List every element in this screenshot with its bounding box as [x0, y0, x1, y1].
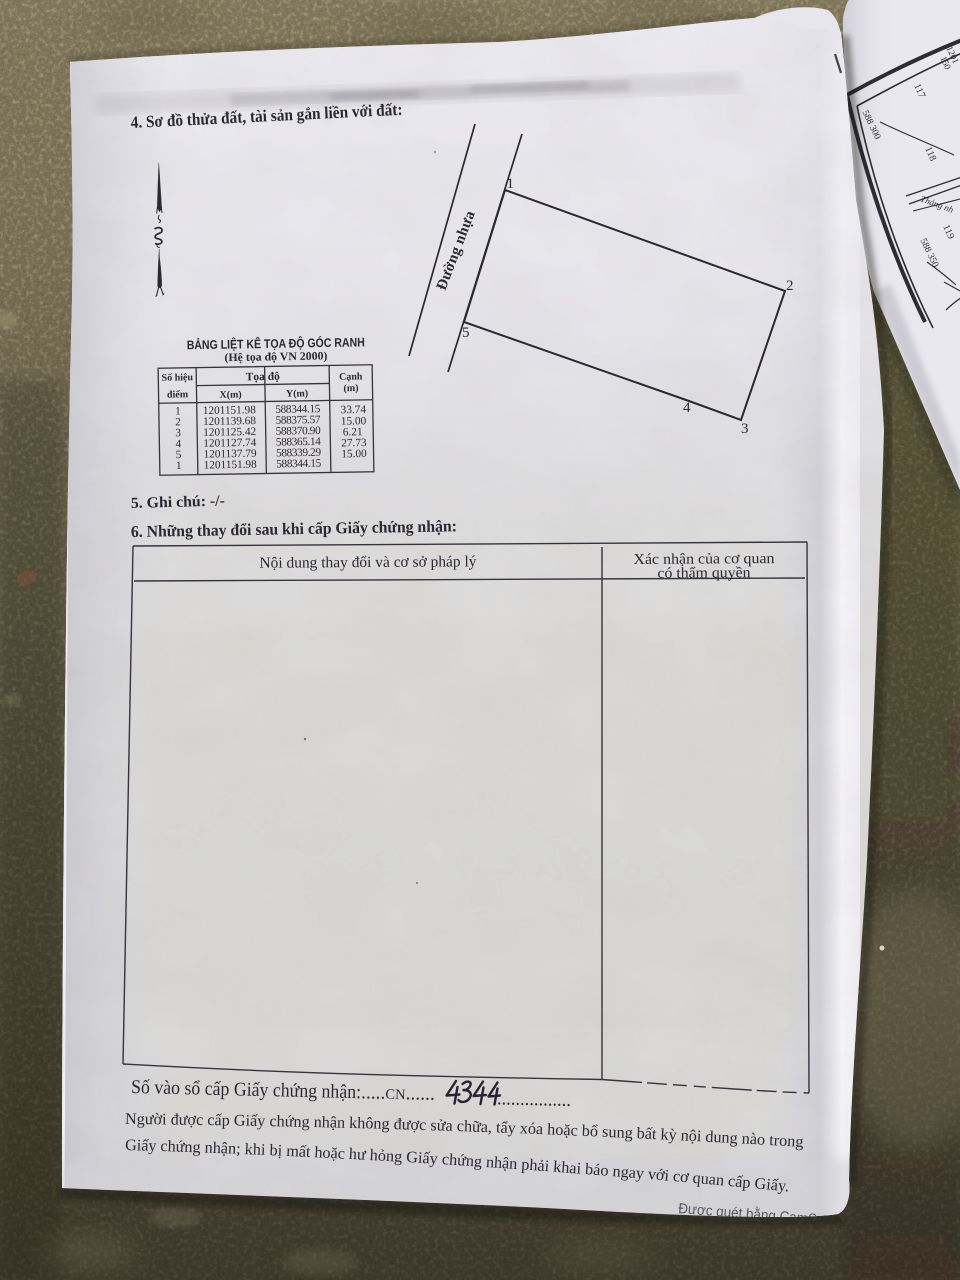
- svg-text:Tọa độ: Tọa độ: [246, 371, 281, 384]
- svg-text:5: 5: [462, 325, 470, 341]
- svg-text:588344.15: 588344.15: [276, 458, 322, 471]
- svg-text:Nội dung thay đổi và cơ sở phá: Nội dung thay đổi và cơ sở pháp lý: [259, 553, 476, 572]
- svg-text:có thẩm quyền: có thẩm quyền: [657, 565, 751, 582]
- svg-text:BẢNG LIỆT KÊ TỌA ĐỘ GÓC RANH: BẢNG LIỆT KÊ TỌA ĐỘ GÓC RANH: [187, 334, 365, 352]
- svg-text:X(m): X(m): [219, 389, 241, 400]
- svg-text:(Hệ tọa độ VN 2000): (Hệ tọa độ VN 2000): [224, 350, 327, 364]
- svg-text:4: 4: [683, 400, 691, 416]
- svg-text:1201151.98: 1201151.98: [204, 459, 258, 472]
- svg-text:1: 1: [507, 176, 515, 192]
- svg-text:2: 2: [786, 278, 794, 294]
- svg-text:3: 3: [741, 421, 749, 437]
- svg-text:15.00: 15.00: [341, 448, 367, 460]
- svg-text:Số hiệu: Số hiệu: [161, 372, 193, 384]
- svg-text:điểm: điểm: [167, 389, 189, 400]
- svg-text:Cạnh: Cạnh: [339, 371, 363, 382]
- svg-text:5. Ghi chú: -/-: 5. Ghi chú: -/-: [131, 493, 225, 512]
- svg-text:(m): (m): [343, 383, 358, 394]
- svg-text:Y(m): Y(m): [286, 388, 308, 399]
- svg-text:1: 1: [176, 460, 182, 472]
- svg-text:................: ................: [497, 1088, 571, 1111]
